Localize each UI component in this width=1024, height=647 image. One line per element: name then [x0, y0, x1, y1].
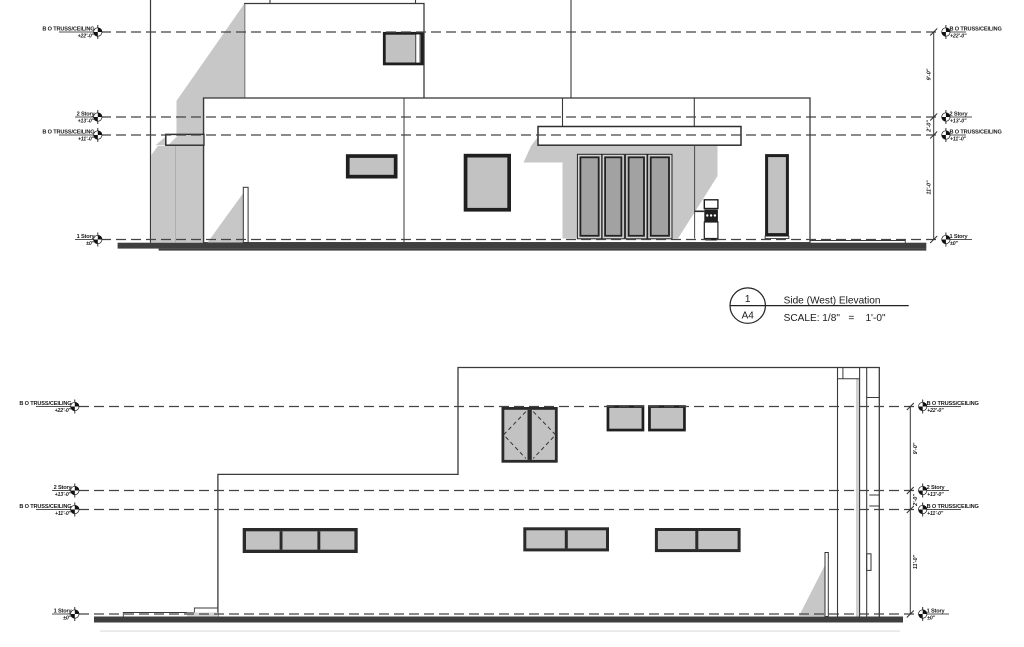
svg-text:Side (West) Elevation: Side (West) Elevation: [784, 296, 881, 307]
svg-text:2'-0": 2'-0": [927, 120, 933, 133]
svg-text:±0": ±0": [950, 241, 959, 247]
svg-text:+13'-0": +13'-0": [78, 118, 95, 124]
svg-text:±0": ±0": [86, 241, 95, 247]
svg-text:1: 1: [745, 294, 751, 305]
svg-text:+13'-0": +13'-0": [927, 492, 944, 498]
svg-text:+13'-0": +13'-0": [950, 118, 967, 124]
svg-text:11'-0": 11'-0": [913, 554, 919, 569]
svg-text:2'-0": 2'-0": [913, 494, 919, 507]
svg-text:+11'-0": +11'-0": [950, 136, 967, 142]
svg-text:A4: A4: [742, 311, 755, 322]
svg-text:+22'-0": +22'-0": [78, 33, 95, 39]
svg-text:9'-0": 9'-0": [927, 68, 933, 80]
svg-text:+22'-0": +22'-0": [55, 408, 72, 414]
svg-text:±0": ±0": [927, 615, 936, 621]
svg-text:9'-0": 9'-0": [913, 442, 919, 454]
svg-text:+13'-0": +13'-0": [55, 492, 72, 498]
svg-text:+11'-0": +11'-0": [927, 511, 944, 517]
svg-text:+11'-0": +11'-0": [78, 136, 95, 142]
svg-text:+22'-0": +22'-0": [950, 33, 967, 39]
svg-text:+22'-0": +22'-0": [927, 408, 944, 414]
svg-text:±0": ±0": [63, 615, 72, 621]
svg-text:+11'-0": +11'-0": [55, 511, 72, 517]
svg-text:11'-0": 11'-0": [927, 180, 933, 195]
svg-text:SCALE: 1/8" = 1'-0": SCALE: 1/8" = 1'-0": [784, 313, 886, 324]
